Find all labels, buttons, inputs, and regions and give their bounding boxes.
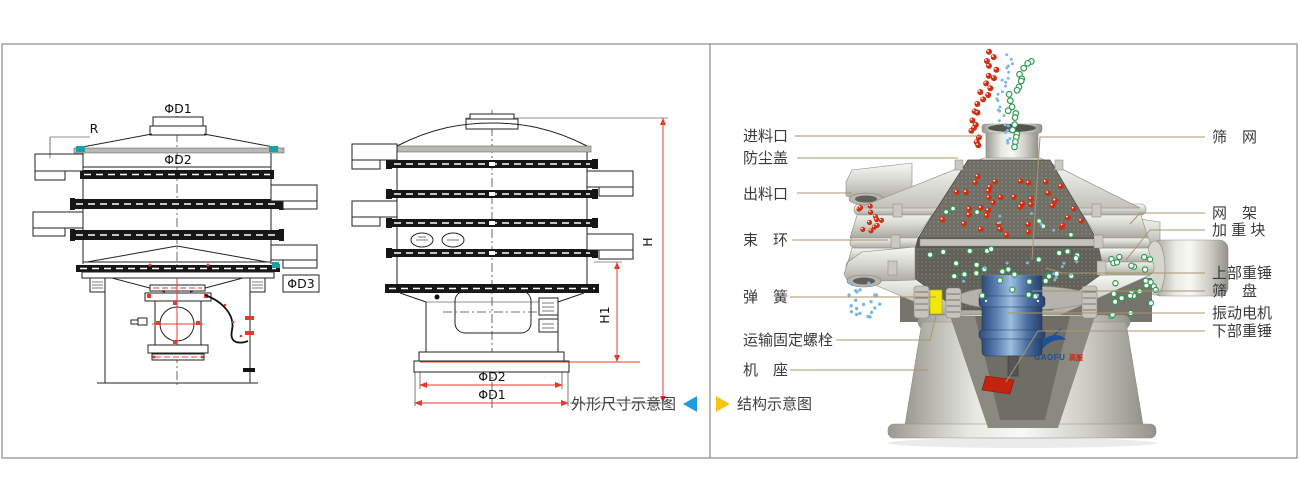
label-lower-hammer: 下部重锤 <box>1212 323 1272 340</box>
label-upper-hammer: 上部重锤 <box>1212 265 1272 282</box>
label-dust-cover: 防尘盖 <box>743 150 788 167</box>
label-weight-block: 加 重 块 <box>1212 222 1265 239</box>
label-transport-bolt: 运输固定螺栓 <box>743 332 833 349</box>
label-spring: 弹 簧 <box>743 289 788 306</box>
dim-label-phiD1: ΦD1 <box>164 101 191 116</box>
label-base: 机 座 <box>743 362 788 379</box>
label-clamp-ring: 束 环 <box>743 232 788 249</box>
label-mesh-frame: 网 架 <box>1212 205 1257 222</box>
sieve-machine-diagram: ΦD1 ΦD2 ΦD3 <box>0 0 1300 482</box>
dim-label-r: R <box>90 121 99 136</box>
transport-bolt <box>930 290 942 314</box>
dim-label-phiD3: ΦD3 <box>287 276 314 291</box>
dim-label-phiD1-bottom: ΦD1 <box>478 387 505 402</box>
dim-label-h: H <box>640 237 655 246</box>
label-feed-inlet: 进料口 <box>743 128 788 145</box>
caption-dimensions[interactable]: 外形尺寸示意图 <box>571 395 676 413</box>
logo-suffix: 高服 <box>1069 353 1084 362</box>
label-vibration-motor: 振动电机 <box>1212 305 1272 322</box>
dim-label-h1: H1 <box>597 306 612 323</box>
spring <box>914 286 929 318</box>
label-screen-mesh: 筛 网 <box>1212 129 1257 146</box>
dim-label-phiD2-bottom: ΦD2 <box>478 369 505 384</box>
label-outlet: 出料口 <box>743 186 788 203</box>
dim-label-phiD2: ΦD2 <box>164 152 191 167</box>
spring <box>946 288 961 318</box>
label-sieve-tray: 筛 盘 <box>1212 282 1257 300</box>
caption-structure[interactable]: 结构示意图 <box>737 395 812 413</box>
screen-mesh-edge <box>920 239 1095 246</box>
